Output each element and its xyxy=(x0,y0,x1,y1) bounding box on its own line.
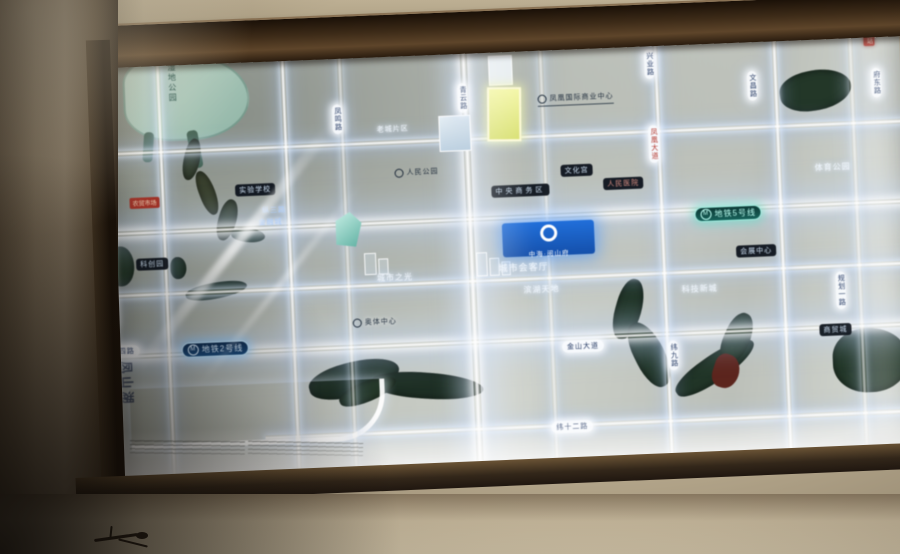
poi-label: 科创园 xyxy=(136,257,168,270)
road-label: 凤凰大道 xyxy=(648,125,660,163)
glow-label: 老城片区 xyxy=(377,123,409,134)
glow-label: 科技新城 xyxy=(681,282,717,294)
poi-circle-icon xyxy=(353,318,362,327)
road-vertical xyxy=(651,19,674,457)
metro-line-2-label: M 地铁2号线 xyxy=(181,340,249,358)
poi-label: 人民医院 xyxy=(603,177,643,191)
brand-logo-icon xyxy=(539,224,557,242)
metro-icon: M xyxy=(700,209,711,220)
metro-icon: M xyxy=(188,344,199,355)
map-panel: 湿地公园 凤山湖 凤鸣路 青云路 兴业路 文昌路 府东路 纬九路 规划一路 滨湖… xyxy=(99,9,900,480)
glow-label: 城市之光 xyxy=(377,271,413,283)
metro-line-5-label: M 地铁5号线 xyxy=(694,205,762,223)
road-label: 凤鸣路 xyxy=(332,104,343,134)
poi-label: 会展中心 xyxy=(736,244,776,258)
road-label: 文昌路 xyxy=(747,71,758,101)
river-segment xyxy=(192,168,223,217)
lake-park-label: 湿地公园 xyxy=(166,63,179,103)
poi-label-circle: 人民公园 xyxy=(394,166,438,178)
road-label: 兴业路 xyxy=(644,49,655,79)
poi-label-red: 农贸市场 xyxy=(129,197,159,209)
wall-sketch xyxy=(88,524,183,554)
road-label: 金山大道 xyxy=(562,339,604,353)
poi-circle-icon xyxy=(537,94,546,103)
poi-label-circle: 凤凰国际商业中心 xyxy=(537,91,613,107)
lake-outlet xyxy=(142,132,154,163)
photo-of-map-board: 湿地公园 凤山湖 凤鸣路 青云路 兴业路 文昌路 府东路 纬九路 规划一路 滨湖… xyxy=(0,0,900,554)
glass-glare xyxy=(429,24,542,466)
poi-circle-icon xyxy=(394,168,403,177)
poi-label-circle: 奥体中心 xyxy=(353,316,397,328)
poi-label: 文化宫 xyxy=(560,164,592,177)
pond-shape xyxy=(170,257,187,280)
road-label: 纬九路 xyxy=(668,340,679,370)
metro-line-text: 地铁5号线 xyxy=(714,207,756,220)
